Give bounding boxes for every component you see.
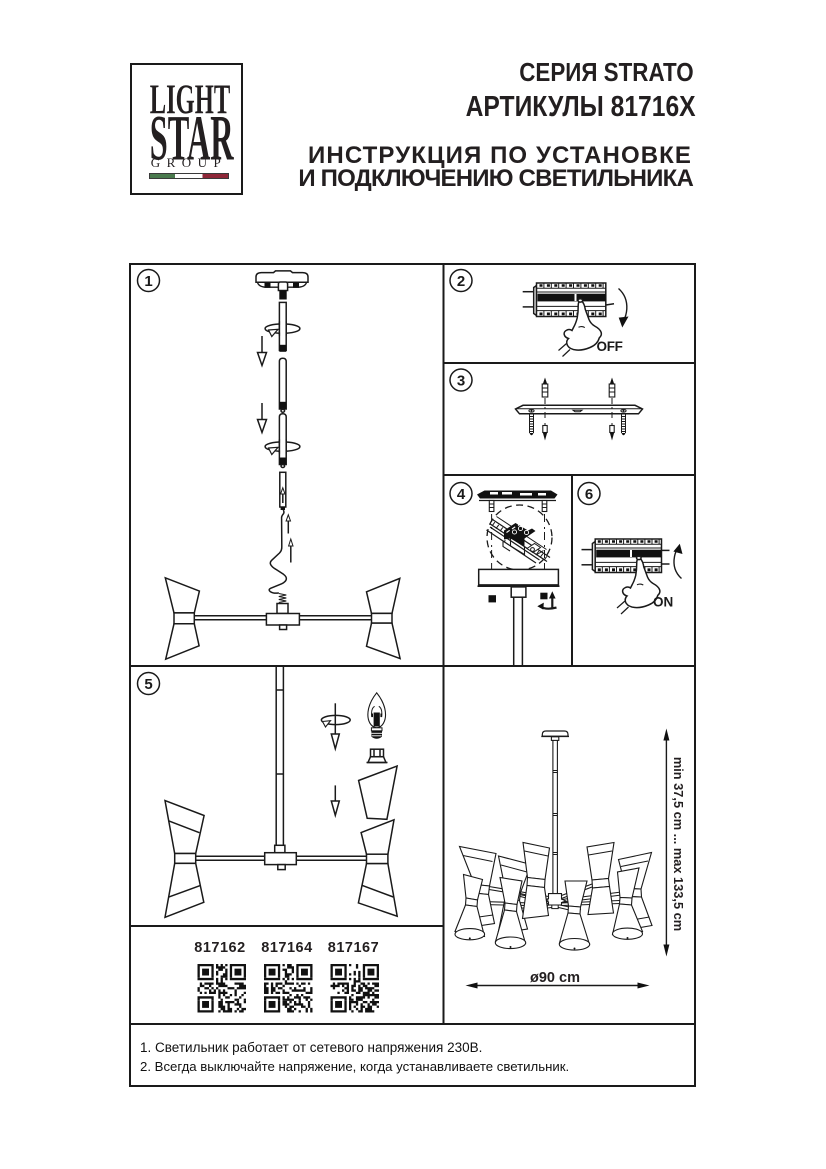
svg-text:817162: 817162 — [194, 940, 245, 956]
svg-text:4: 4 — [457, 486, 466, 503]
svg-text:min 37,5 cm ... max 133,5 cm: min 37,5 cm ... max 133,5 cm — [671, 757, 686, 931]
svg-text:3: 3 — [457, 373, 465, 390]
svg-text:ø90 cm: ø90 cm — [530, 970, 580, 986]
svg-text:6: 6 — [585, 486, 593, 503]
svg-text:817164: 817164 — [261, 940, 312, 956]
svg-text:817167: 817167 — [328, 940, 379, 956]
svg-text:2: 2 — [457, 273, 465, 290]
svg-text:1: 1 — [144, 273, 152, 290]
svg-text:OFF: OFF — [597, 339, 623, 354]
svg-text:ON: ON — [653, 595, 673, 610]
svg-text:5: 5 — [144, 676, 152, 693]
